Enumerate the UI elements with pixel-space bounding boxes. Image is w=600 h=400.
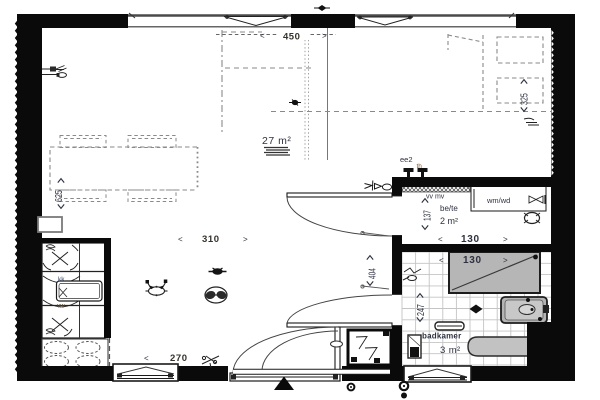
svg-text:vv mv: vv mv: [426, 194, 445, 201]
svg-text:<: <: [438, 235, 443, 244]
svg-text:247: 247: [415, 304, 427, 316]
svg-text:<: <: [260, 32, 265, 41]
svg-text:th: th: [417, 163, 423, 170]
svg-text:310: 310: [202, 234, 220, 245]
svg-text:ee2: ee2: [400, 155, 413, 164]
svg-text:325: 325: [518, 93, 530, 105]
svg-text:<: <: [439, 256, 444, 265]
svg-text:badkamer: badkamer: [422, 332, 461, 341]
svg-text:>: >: [503, 256, 508, 265]
svg-text:wm/wd: wm/wd: [486, 196, 510, 205]
svg-text:vw: vw: [57, 303, 65, 310]
svg-text:130: 130: [461, 234, 480, 245]
svg-text:27 m²: 27 m²: [262, 135, 291, 147]
svg-text:>: >: [322, 32, 327, 41]
svg-text:kk: kk: [58, 276, 65, 283]
svg-text:130: 130: [463, 255, 482, 266]
svg-text:3 m²: 3 m²: [440, 345, 461, 356]
svg-text:450: 450: [283, 32, 300, 43]
svg-text:<: <: [178, 235, 183, 244]
svg-text:be/te: be/te: [440, 204, 458, 213]
svg-text:270: 270: [170, 353, 188, 364]
svg-text:404: 404: [366, 268, 378, 279]
svg-text:2 m²: 2 m²: [440, 216, 458, 226]
svg-text:625: 625: [53, 190, 65, 202]
svg-text:<: <: [144, 354, 149, 363]
svg-text:>: >: [243, 235, 248, 244]
svg-text:137: 137: [421, 210, 433, 221]
svg-text:>: >: [503, 235, 508, 244]
